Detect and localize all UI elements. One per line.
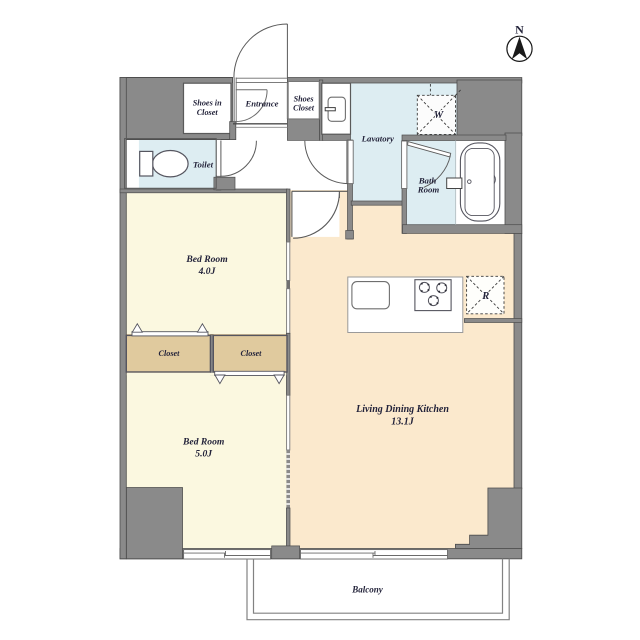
svg-text:5.0J: 5.0J: [195, 449, 213, 460]
svg-text:Lavatory: Lavatory: [361, 134, 394, 144]
svg-text:Closet: Closet: [241, 349, 263, 358]
svg-text:4.0J: 4.0J: [198, 266, 217, 277]
svg-text:Shoes: Shoes: [294, 95, 314, 104]
svg-text:N: N: [515, 23, 524, 37]
svg-text:Closet: Closet: [159, 349, 181, 358]
svg-text:13.1J: 13.1J: [391, 417, 415, 428]
svg-text:Closet: Closet: [197, 108, 219, 117]
svg-text:Bed Room: Bed Room: [182, 437, 224, 448]
svg-text:Shoes in: Shoes in: [193, 99, 222, 108]
svg-text:Living Dining Kitchen: Living Dining Kitchen: [355, 404, 449, 415]
svg-text:W: W: [434, 110, 444, 121]
svg-text:R: R: [481, 291, 489, 302]
svg-text:Bed Room: Bed Room: [185, 254, 227, 265]
svg-text:Toilet: Toilet: [193, 160, 214, 170]
svg-text:Entrance: Entrance: [245, 99, 279, 109]
svg-text:Closet: Closet: [293, 104, 315, 113]
svg-text:Room: Room: [417, 185, 440, 195]
svg-text:Balcony: Balcony: [351, 585, 384, 595]
